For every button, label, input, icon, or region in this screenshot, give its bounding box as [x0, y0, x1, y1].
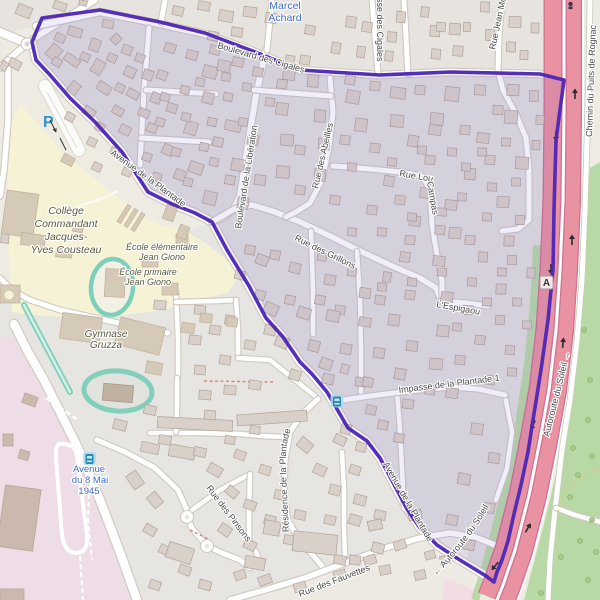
svg-text:Yves Cousteau: Yves Cousteau [31, 244, 102, 256]
svg-text:Jean Giono: Jean Giono [124, 277, 171, 287]
svg-text:Gruzza: Gruzza [90, 340, 123, 351]
svg-text:Collège: Collège [48, 205, 84, 217]
svg-text:École élémentaire: École élémentaire [126, 242, 198, 252]
svg-text:Achard: Achard [268, 12, 301, 24]
svg-text:1945: 1945 [78, 486, 99, 497]
svg-text:Gymnase: Gymnase [85, 329, 128, 340]
svg-text:Jacques-: Jacques- [44, 231, 88, 243]
svg-text:École primaire: École primaire [119, 267, 177, 277]
svg-text:Avenue: Avenue [73, 464, 105, 475]
svg-text:Jean Giono: Jean Giono [138, 252, 185, 262]
svg-text:Commandant: Commandant [34, 218, 98, 230]
svg-text:A: A [543, 278, 550, 289]
svg-text:du 8 Mai: du 8 Mai [72, 475, 108, 486]
svg-text:Marcel: Marcel [269, 0, 301, 12]
svg-text:P: P [43, 114, 54, 131]
svg-text:Impasse des Cigales: Impasse des Cigales [375, 0, 385, 62]
